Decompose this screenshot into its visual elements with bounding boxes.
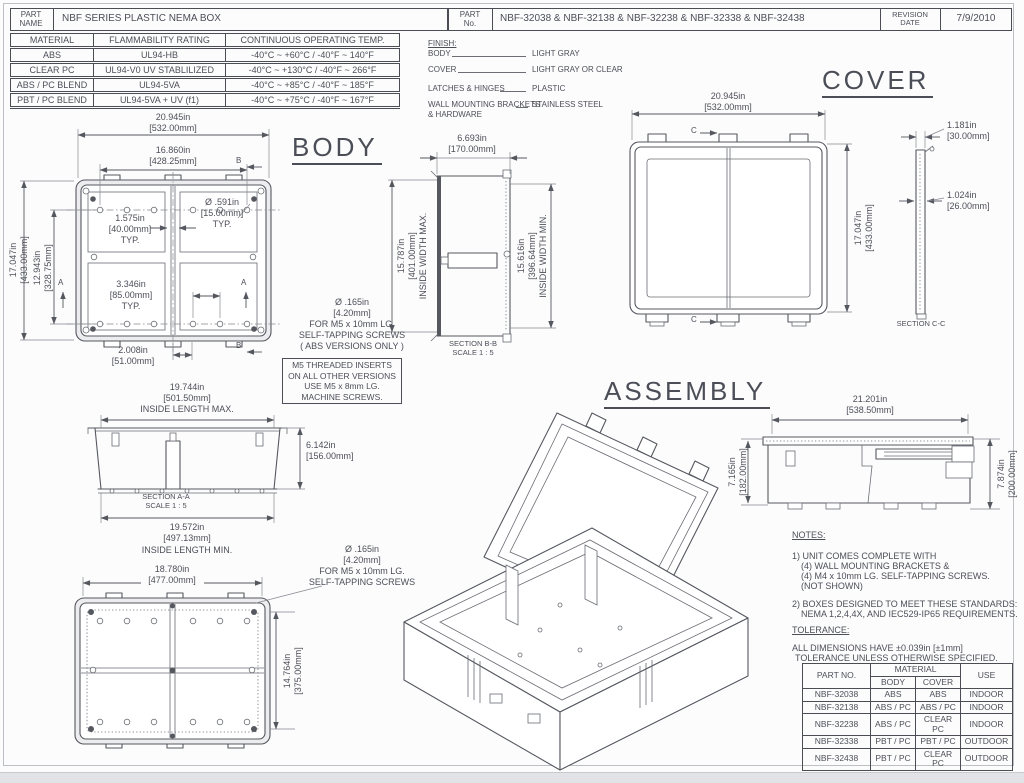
cell: -40°C ~ +75°C / -40°F ~ 167°F: [226, 93, 400, 108]
aa-max-in: 19.744in: [170, 382, 205, 393]
body-dim-hole-in: Ø .591in: [205, 197, 239, 208]
cell: PBT / PC: [916, 736, 961, 749]
body-dim-span-typ: TYP.: [122, 301, 141, 312]
cell: UL94-5VA + UV (f1): [94, 93, 226, 108]
materials-header-material: MATERIAL: [11, 34, 94, 48]
cell: PBT / PC: [871, 736, 916, 749]
drawing-sheet: PART NAME NBF SERIES PLASTIC NEMA BOX MA…: [0, 0, 1024, 783]
divider: [880, 8, 881, 31]
body-dim-width-mm: [532.00mm]: [149, 123, 197, 134]
notes-title: NOTES:: [792, 530, 826, 541]
aa-depth-in: 6.142in: [306, 440, 336, 451]
parts-row: NBF-32138 ABS / PC ABS / PC INDOOR: [803, 701, 1013, 714]
parts-table: PART NO. MATERIAL USE BODY COVER NBF-320…: [802, 663, 1013, 771]
assembly-isometric-view: [404, 413, 748, 770]
divider: [940, 8, 941, 31]
part-name-label-line1: PART: [21, 10, 42, 19]
aa-min-mm: [497.13mm]: [163, 533, 211, 544]
section-marker-c-top: C: [691, 126, 697, 135]
cell: PBT / PC: [871, 748, 916, 770]
assembly-side-view: [741, 414, 1000, 509]
parts-row: NBF-32438 PBT / PC CLEAR PC OUTDOOR: [803, 748, 1013, 770]
screw-note-line3: FOR M5 x 10mm LG.: [309, 319, 395, 330]
body-dim-width2-in: 16.860in: [156, 145, 191, 156]
cover-front-view: [630, 110, 852, 326]
cell: UL94-V0 UV STABLILIZED: [94, 63, 226, 78]
bb-dim-depth-in: 6.693in: [457, 133, 487, 144]
bottom-callout-line4: SELF-TAPPING SCREWS: [309, 577, 415, 588]
cell: OUTDOOR: [961, 748, 1013, 770]
bb-caption-line2: SCALE 1 : 5: [452, 349, 493, 358]
materials-table: MATERIAL FLAMMABILITY RATING CONTINUOUS …: [10, 33, 400, 109]
bottom-callout-dia: Ø .165in: [345, 544, 379, 555]
body-dim-pitch-typ: TYP.: [121, 235, 140, 246]
assembly-dim-body: 7.165in[182.00mm]: [727, 427, 749, 517]
assembly-view-title: ASSEMBLY: [604, 377, 770, 409]
cell: ABS / PC BLEND: [11, 78, 94, 93]
finish-cover-value: LIGHT GRAY OR CLEAR: [532, 65, 623, 74]
revision-date-value: 7/9/2010: [957, 13, 996, 25]
aa-min-label: INSIDE LENGTH MIN.: [142, 545, 233, 556]
cell: ABS / PC: [871, 701, 916, 714]
cell: NBF-32138: [803, 701, 871, 714]
screw-note-dia: Ø .165in: [335, 297, 369, 308]
cover-view-title: COVER: [822, 66, 933, 98]
cell: OUTDOOR: [961, 736, 1013, 749]
parts-header-use: USE: [961, 664, 1013, 689]
cell: PBT / PC BLEND: [11, 93, 94, 108]
cover-dim-width-mm: [532.00mm]: [704, 102, 752, 113]
body-dim-offset-in: 2.008in: [118, 345, 148, 356]
finish-brackets-value: STAINLESS STEEL: [532, 100, 603, 109]
materials-row: ABS UL94-HB -40°C ~ +60°C / -40°F ~ 140°…: [11, 48, 400, 63]
body-view-title: BODY: [292, 133, 382, 165]
body-dim-pitch-in: 1.575in: [115, 213, 145, 224]
screw-note-mm: [4.20mm]: [333, 308, 371, 319]
part-no-label-line2: No.: [464, 19, 476, 28]
divider: [492, 8, 493, 31]
tolerance-title: TOLERANCE:: [792, 625, 849, 636]
bottom-callout-line3: FOR M5 x 10mm LG.: [319, 566, 405, 577]
cc-caption: SECTION C-C: [897, 320, 946, 329]
assembly-dim-width-mm: [538.50mm]: [846, 405, 894, 416]
cell: ABS / PC: [916, 701, 961, 714]
bb-dim-depth-mm: [170.00mm]: [448, 144, 496, 155]
finish-leader: [516, 107, 528, 108]
cell: ABS / PC: [871, 714, 916, 736]
finish-leader: [458, 72, 526, 73]
cell: NBF-32338: [803, 736, 871, 749]
materials-row: PBT / PC BLEND UL94-5VA + UV (f1) -40°C …: [11, 93, 400, 108]
cell: -40°C ~ +60°C / -40°F ~ 140°F: [226, 48, 400, 63]
threaded-insert-note: M5 THREADED INSERTSON ALL OTHER VERSIONS…: [282, 358, 402, 404]
body-dim-height: 17.047in[433.00mm]: [8, 205, 30, 315]
cell: UL94-HB: [94, 48, 226, 63]
cc-dim2-mm: [26.00mm]: [947, 201, 990, 212]
bottom-dim-height: 14.764in[375.00mm]: [282, 616, 304, 726]
bottom-callout-mm: [4.20mm]: [343, 555, 381, 566]
parts-row: NBF-32038 ABS ABS INDOOR: [803, 689, 1013, 702]
parts-header-part: PART NO.: [803, 664, 871, 689]
section-marker-b-bottom: B: [236, 341, 241, 350]
aa-depth-mm: [156.00mm]: [306, 451, 354, 462]
section-marker-b-top: B: [236, 156, 241, 165]
cell: NBF-32238: [803, 714, 871, 736]
finish-cover-label: COVER: [428, 65, 456, 74]
finish-body-value: LIGHT GRAY: [532, 49, 580, 58]
finish-latches-value: PLASTIC: [532, 84, 565, 93]
part-no-value: NBF-32038 & NBF-32138 & NBF-32238 & NBF-…: [500, 13, 805, 25]
cell: -40°C ~ +130°C / -40°F ~ 266°F: [226, 63, 400, 78]
screw-note-line5: ( ABS VERSIONS ONLY ): [300, 341, 404, 352]
cell: INDOOR: [961, 689, 1013, 702]
assembly-dim-total: 7.874in[200.00mm]: [996, 429, 1018, 519]
bb-inside-width-min: 15.616in[396.64mm]INSIDE WIDTH MIN.: [516, 196, 549, 316]
bottom-dim-width-mm: [477.00mm]: [148, 575, 196, 586]
parts-header-cover: COVER: [916, 676, 961, 689]
finish-body-label: BODY: [428, 49, 451, 58]
aa-max-mm: [501.50mm]: [163, 393, 211, 404]
cell: ABS: [916, 689, 961, 702]
cell: ABS: [11, 48, 94, 63]
cell: CLEAR PC: [916, 714, 961, 736]
finish-title: FINISH:: [428, 39, 456, 48]
materials-header-temp: CONTINUOUS OPERATING TEMP.: [226, 34, 400, 48]
body-dim-hole-typ: TYP.: [213, 219, 232, 230]
parts-header-material: MATERIAL: [871, 664, 961, 677]
sheet-bottom-strip: [0, 772, 1024, 783]
cover-dim-height: 17.047in[433.00mm]: [853, 173, 875, 283]
cover-dim-width-in: 20.945in: [711, 91, 746, 102]
body-dim-hole-mm: [15.00mm]: [201, 208, 244, 219]
section-marker-c-bottom: C: [691, 315, 697, 324]
part-name-value: NBF SERIES PLASTIC NEMA BOX: [62, 13, 221, 25]
parts-row: NBF-32238 ABS / PC CLEAR PC INDOOR: [803, 714, 1013, 736]
body-dim-offset-mm: [51.00mm]: [112, 356, 155, 367]
note2-line2: NEMA 1,2,4,4X, AND IEC529-IP65 REQUIREME…: [801, 609, 1018, 620]
body-dim-width-in: 20.945in: [156, 112, 191, 123]
cell: NBF-32038: [803, 689, 871, 702]
cell: -40°C ~ +85°C / -40°F ~ 185°F: [226, 78, 400, 93]
cell: ABS: [871, 689, 916, 702]
parts-header-body: BODY: [871, 676, 916, 689]
bottom-dim-width-in: 18.780in: [155, 564, 190, 575]
finish-brackets-label2: & HARDWARE: [428, 110, 482, 119]
body-dim-pitch-mm: [40.00mm]: [109, 224, 152, 235]
materials-row: CLEAR PC UL94-V0 UV STABLILIZED -40°C ~ …: [11, 63, 400, 78]
part-name-label-line2: NAME: [19, 19, 42, 28]
cell: INDOOR: [961, 701, 1013, 714]
cc-dim1-mm: [30.00mm]: [947, 131, 990, 142]
cell: INDOOR: [961, 714, 1013, 736]
section-marker-a-left: A: [58, 278, 63, 287]
finish-leader: [500, 91, 526, 92]
cell: NBF-32438: [803, 748, 871, 770]
part-no-label-line1: PART: [460, 10, 481, 19]
materials-header-flammability: FLAMMABILITY RATING: [94, 34, 226, 48]
parts-row: NBF-32338 PBT / PC PBT / PC OUTDOOR: [803, 736, 1013, 749]
finish-leader: [452, 56, 526, 57]
aa-max-label: INSIDE LENGTH MAX.: [140, 404, 234, 415]
body-dim-height2: 12.943in[328.75mm]: [32, 218, 54, 318]
body-dim-width2-mm: [428.25mm]: [149, 156, 197, 167]
body-dim-span-in: 3.346in: [116, 279, 146, 290]
cc-dim1-in: 1.181in: [947, 120, 977, 131]
screw-note-line4: SELF-TAPPING SCREWS: [299, 330, 405, 341]
bb-inside-width-max: 15.787in[401.00mm]INSIDE WIDTH MAX.: [396, 196, 429, 316]
note1-line4: (NOT SHOWN): [801, 581, 863, 592]
cc-dim2-in: 1.024in: [947, 190, 977, 201]
assembly-dim-width-in: 21.201in: [853, 394, 888, 405]
revision-label-line2: DATE: [900, 19, 919, 28]
finish-latches-label: LATCHES & HINGES: [428, 84, 505, 93]
section-aa-view: [88, 415, 305, 523]
aa-min-in: 19.572in: [170, 522, 205, 533]
cell: UL94-5VA: [94, 78, 226, 93]
part-name-divider: [53, 8, 54, 31]
cell: CLEAR PC: [916, 748, 961, 770]
section-marker-a-right: A: [241, 278, 246, 287]
cell: CLEAR PC: [11, 63, 94, 78]
body-dim-span-mm: [85.00mm]: [110, 290, 153, 301]
aa-caption-line2: SCALE 1 : 5: [145, 502, 186, 511]
section-cc-view: [899, 129, 944, 319]
materials-row: ABS / PC BLEND UL94-5VA -40°C ~ +85°C / …: [11, 78, 400, 93]
